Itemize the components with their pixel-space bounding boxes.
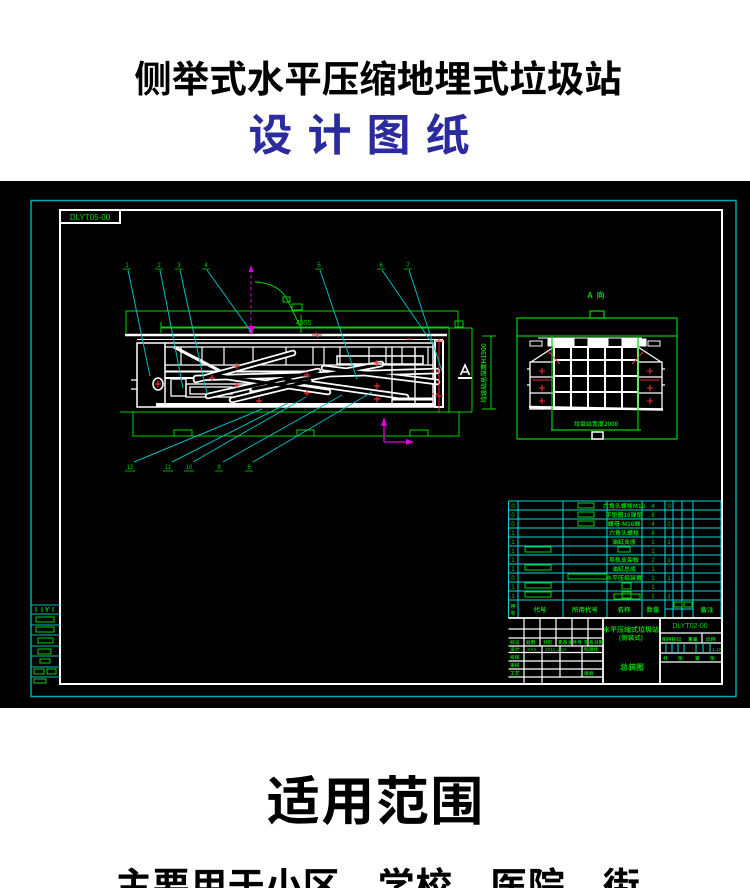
svg-text:12: 12 — [127, 465, 134, 471]
svg-text:1: 1 — [511, 585, 515, 591]
svg-text:1: 1 — [651, 549, 655, 555]
svg-text:1: 1 — [511, 558, 515, 564]
svg-text:1: 1 — [667, 558, 671, 564]
svg-text:7: 7 — [406, 263, 410, 269]
svg-text:0: 0 — [511, 522, 515, 528]
svg-text:1: 1 — [667, 594, 671, 600]
svg-text:0: 0 — [667, 522, 671, 528]
svg-text:2: 2 — [651, 558, 655, 564]
svg-text:1: 1 — [651, 594, 655, 600]
svg-text:4: 4 — [651, 522, 655, 528]
svg-text:DLYT05-00: DLYT05-00 — [70, 213, 111, 222]
svg-text:1: 1 — [667, 576, 671, 582]
svg-text:1:10: 1:10 — [712, 647, 722, 653]
svg-text:5: 5 — [317, 263, 321, 269]
svg-text:0: 0 — [667, 504, 671, 510]
svg-text:XXX: XXX — [527, 647, 537, 653]
svg-text:1: 1 — [651, 540, 655, 546]
svg-text:1: 1 — [651, 576, 655, 582]
svg-text:10: 10 — [186, 465, 193, 471]
svg-text:4: 4 — [651, 504, 655, 510]
svg-text:8: 8 — [651, 513, 655, 519]
svg-text:1: 1 — [511, 531, 515, 537]
svg-text:1: 1 — [651, 567, 655, 573]
svg-text:0: 0 — [511, 576, 515, 582]
svg-text:2: 2 — [157, 263, 161, 269]
svg-text:1: 1 — [511, 540, 515, 546]
svg-text:1: 1 — [511, 594, 515, 600]
svg-text:0: 0 — [511, 504, 515, 510]
svg-text:6: 6 — [379, 263, 383, 269]
svg-text:1: 1 — [125, 263, 129, 269]
svg-text:2011.1.10: 2011.1.10 — [545, 647, 566, 653]
svg-text:4: 4 — [204, 263, 208, 269]
svg-text:1: 1 — [511, 567, 515, 573]
svg-text:1: 1 — [667, 540, 671, 546]
svg-text:8: 8 — [651, 531, 655, 537]
svg-text:0: 0 — [511, 513, 515, 519]
svg-text:1: 1 — [511, 549, 515, 555]
svg-text:8: 8 — [247, 465, 251, 471]
svg-text:9: 9 — [217, 465, 221, 471]
svg-text:3: 3 — [177, 263, 181, 269]
svg-text:DLYT02-00: DLYT02-00 — [672, 623, 707, 630]
svg-text:11: 11 — [165, 465, 172, 471]
svg-text:1: 1 — [651, 585, 655, 591]
